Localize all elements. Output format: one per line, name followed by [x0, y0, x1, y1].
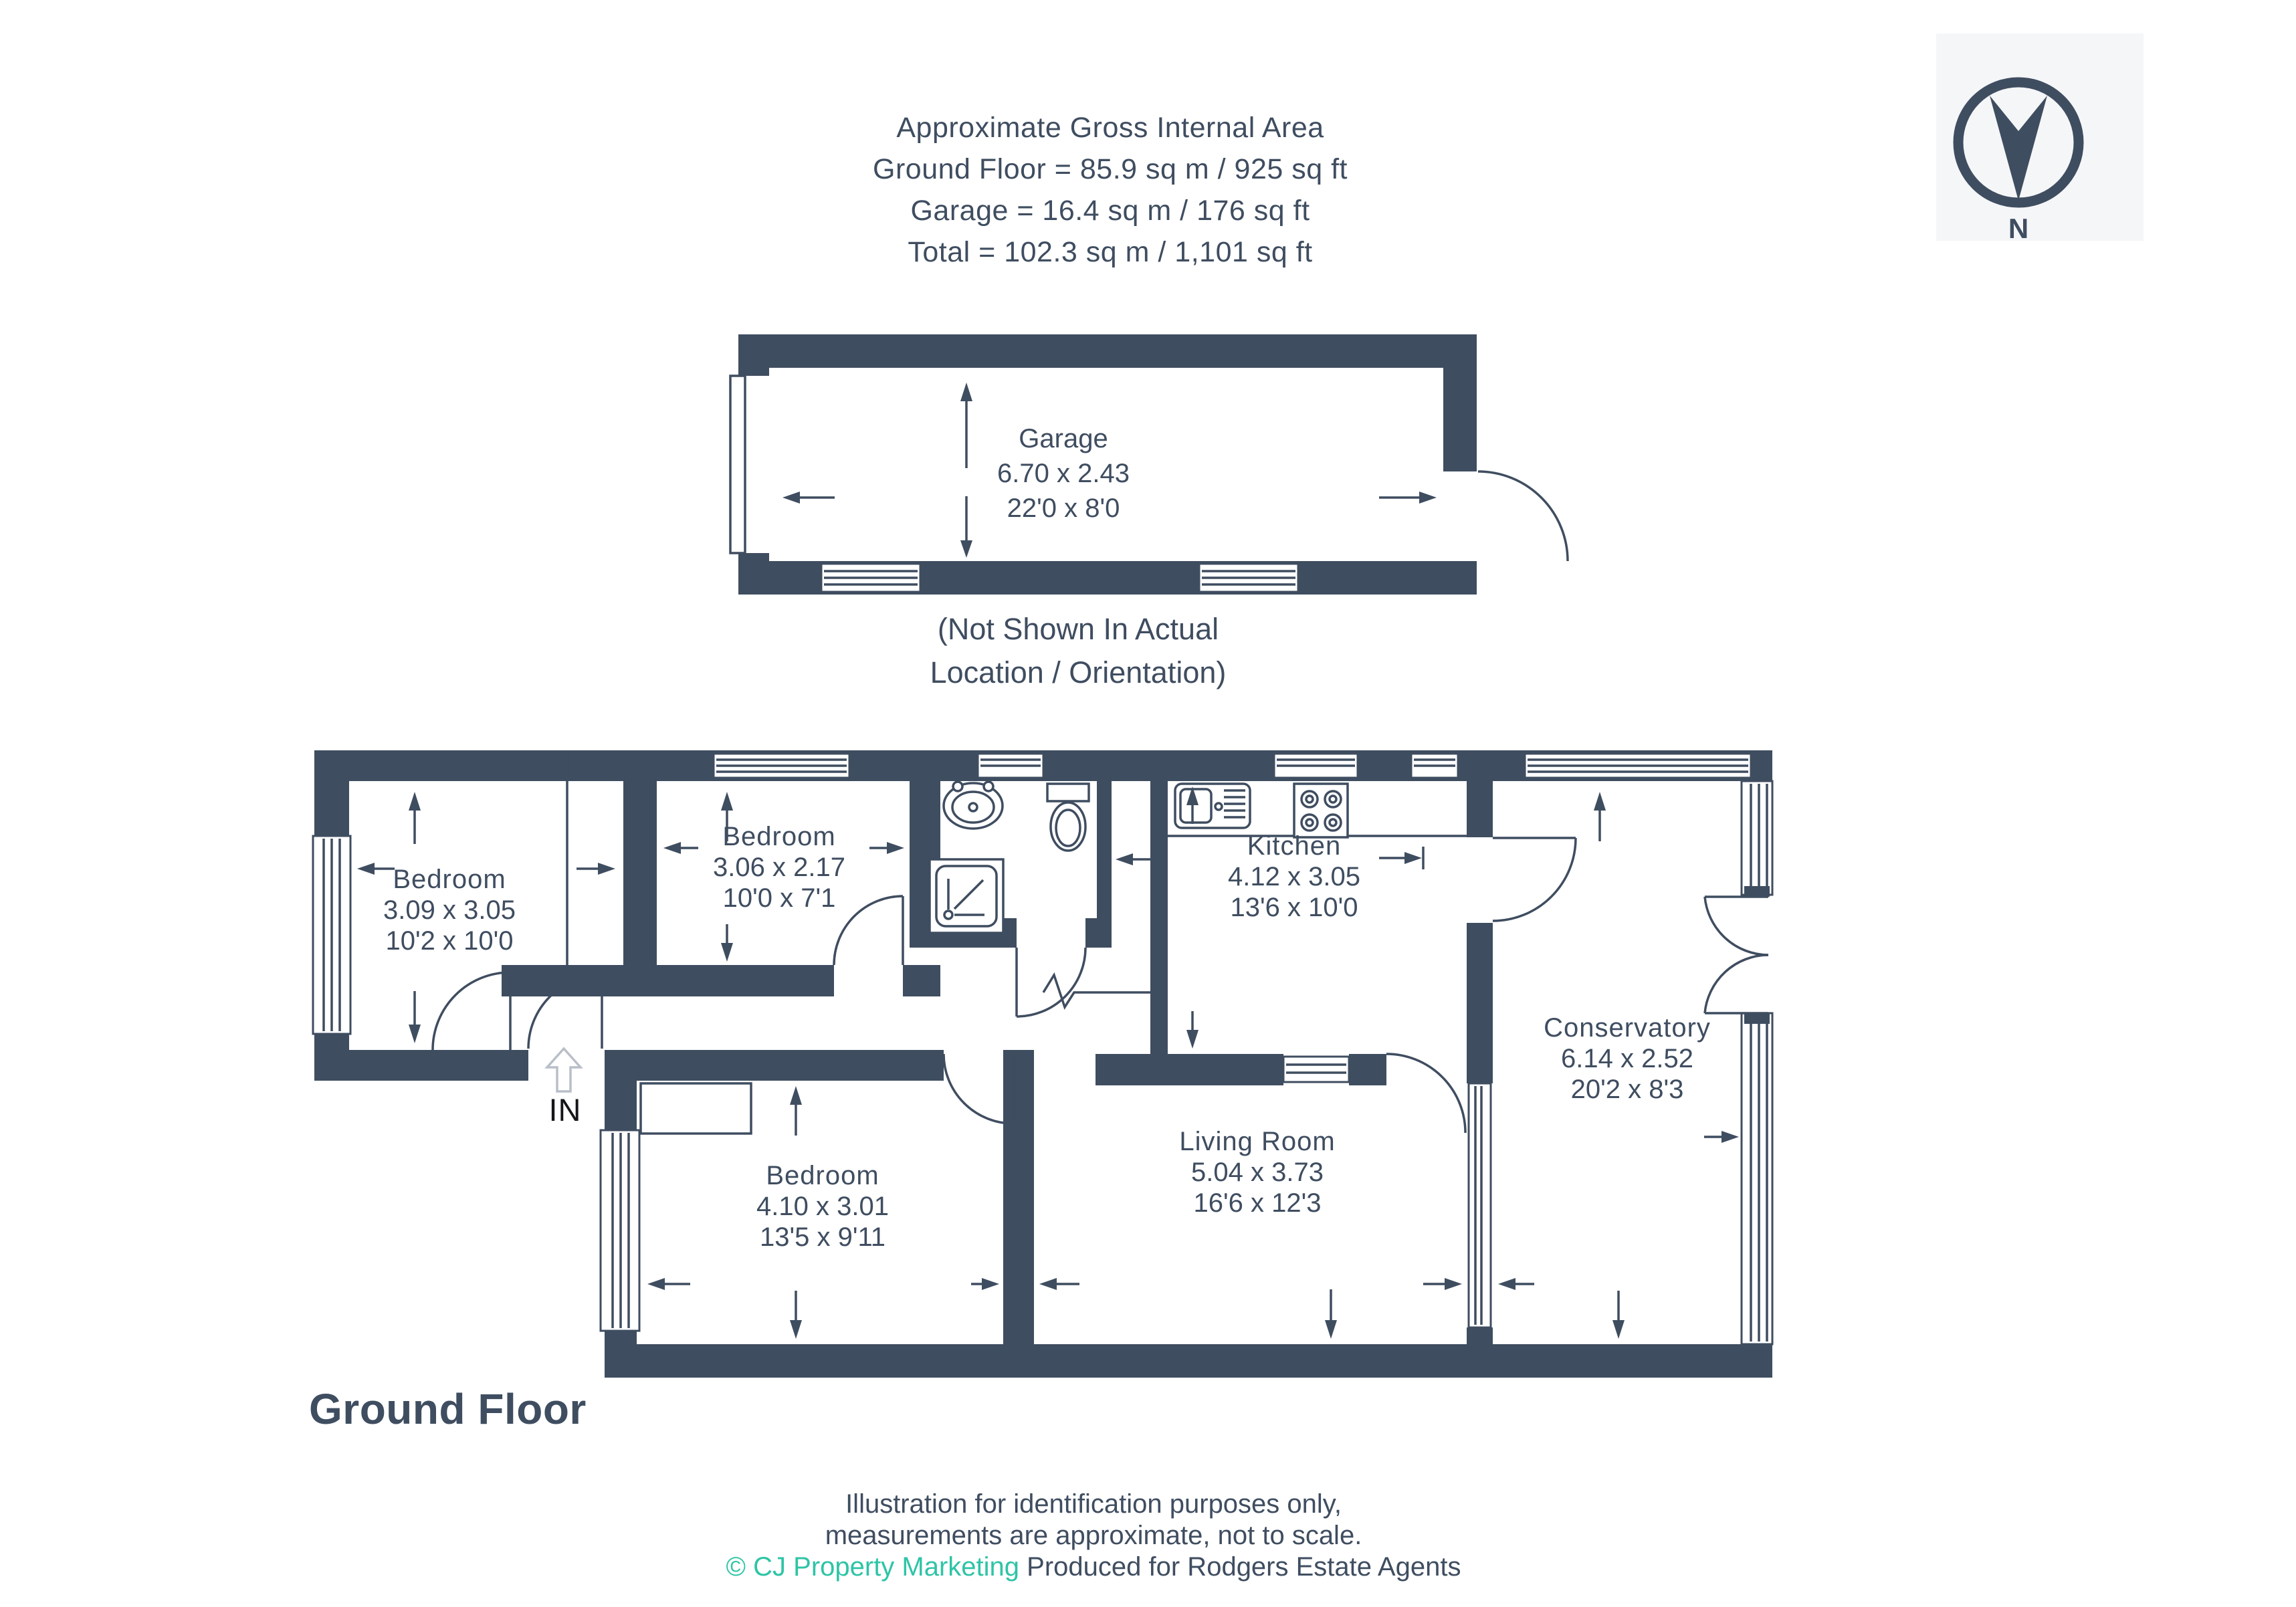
footer-credit-line: © CJ Property Marketing Produced for Rod… [726, 1551, 1461, 1583]
floor-title: Ground Floor [309, 1384, 587, 1434]
toilet-icon [1047, 784, 1089, 851]
room-label-garage: Garage 6.70 x 2.43 22'0 x 8'0 [997, 421, 1130, 526]
area-garage: Garage = 16.4 sq m / 176 sq ft [873, 190, 1348, 231]
room-label-bedroom-3: Bedroom 4.10 x 3.01 13'5 x 9'11 [756, 1160, 889, 1253]
svg-text:N: N [2008, 213, 2028, 244]
footer-credit: © CJ Property Marketing [726, 1552, 1020, 1582]
garage-door [730, 376, 745, 553]
french-doors [1705, 897, 1768, 1013]
footer-disclaimer-2: measurements are approximate, not to sca… [726, 1520, 1461, 1551]
area-ground-floor: Ground Floor = 85.9 sq m / 925 sq ft [873, 148, 1348, 190]
room-label-bedroom-1: Bedroom 3.09 x 3.05 10'2 x 10'0 [383, 864, 516, 956]
area-total: Total = 102.3 sq m / 1,101 sq ft [873, 231, 1348, 273]
basin-icon [944, 782, 1003, 829]
kitchen-conservatory-door [1493, 838, 1576, 921]
garage-window [821, 564, 920, 592]
sink-icon [1175, 784, 1250, 828]
kitchen-fixtures [1168, 784, 1467, 837]
area-summary-title: Approximate Gross Internal Area [873, 107, 1348, 148]
room-label-kitchen: Kitchen 4.12 x 3.05 13'6 x 10'0 [1228, 831, 1360, 923]
garage-note: (Not Shown In Actual Location / Orientat… [930, 607, 1227, 694]
bathroom-fixtures [930, 782, 1089, 933]
entrance-arrow-icon [547, 1049, 581, 1091]
room-label-living-room: Living Room 5.04 x 3.73 16'6 x 12'3 [1179, 1126, 1335, 1218]
entrance-label: IN [549, 1091, 582, 1128]
room-label-bedroom-2: Bedroom 3.06 x 2.17 10'0 x 7'1 [713, 821, 845, 914]
garage-window [1199, 564, 1298, 592]
closet-outline [641, 1083, 751, 1134]
room-label-conservatory: Conservatory 6.14 x 2.52 20'2 x 8'3 [1544, 1012, 1711, 1105]
shower-icon [930, 859, 1003, 933]
kitchen-living-door [1386, 1054, 1465, 1133]
north-compass-icon: N [1936, 33, 2144, 244]
area-summary: Approximate Gross Internal Area Ground F… [873, 107, 1348, 273]
garage-structure [730, 334, 1568, 595]
garage-door-swing [1478, 471, 1568, 561]
conservatory-glazing [1705, 781, 1772, 1344]
footer-disclaimer-1: Illustration for identification purposes… [726, 1489, 1461, 1520]
footer: Illustration for identification purposes… [726, 1489, 1461, 1583]
bedroom1-door [433, 972, 510, 1050]
bedroom3-door [944, 1054, 1013, 1123]
footer-produced-for: Produced for Rodgers Estate Agents [1027, 1552, 1461, 1582]
hob-icon [1294, 784, 1348, 837]
